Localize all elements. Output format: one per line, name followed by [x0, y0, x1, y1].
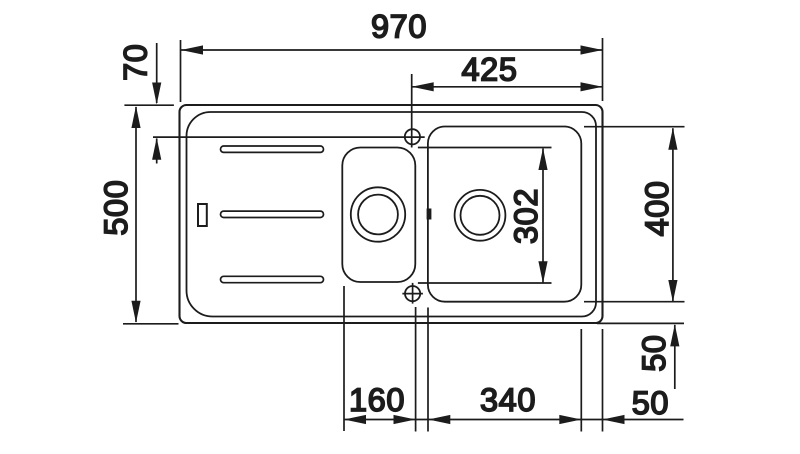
svg-text:50: 50 [636, 334, 672, 371]
svg-text:160: 160 [349, 382, 405, 418]
svg-text:70: 70 [117, 44, 153, 81]
svg-text:970: 970 [371, 9, 427, 45]
svg-text:425: 425 [461, 52, 517, 88]
svg-text:400: 400 [639, 180, 675, 236]
svg-text:340: 340 [480, 382, 536, 418]
svg-text:500: 500 [98, 180, 134, 236]
svg-text:50: 50 [632, 385, 669, 421]
svg-text:302: 302 [508, 188, 544, 244]
